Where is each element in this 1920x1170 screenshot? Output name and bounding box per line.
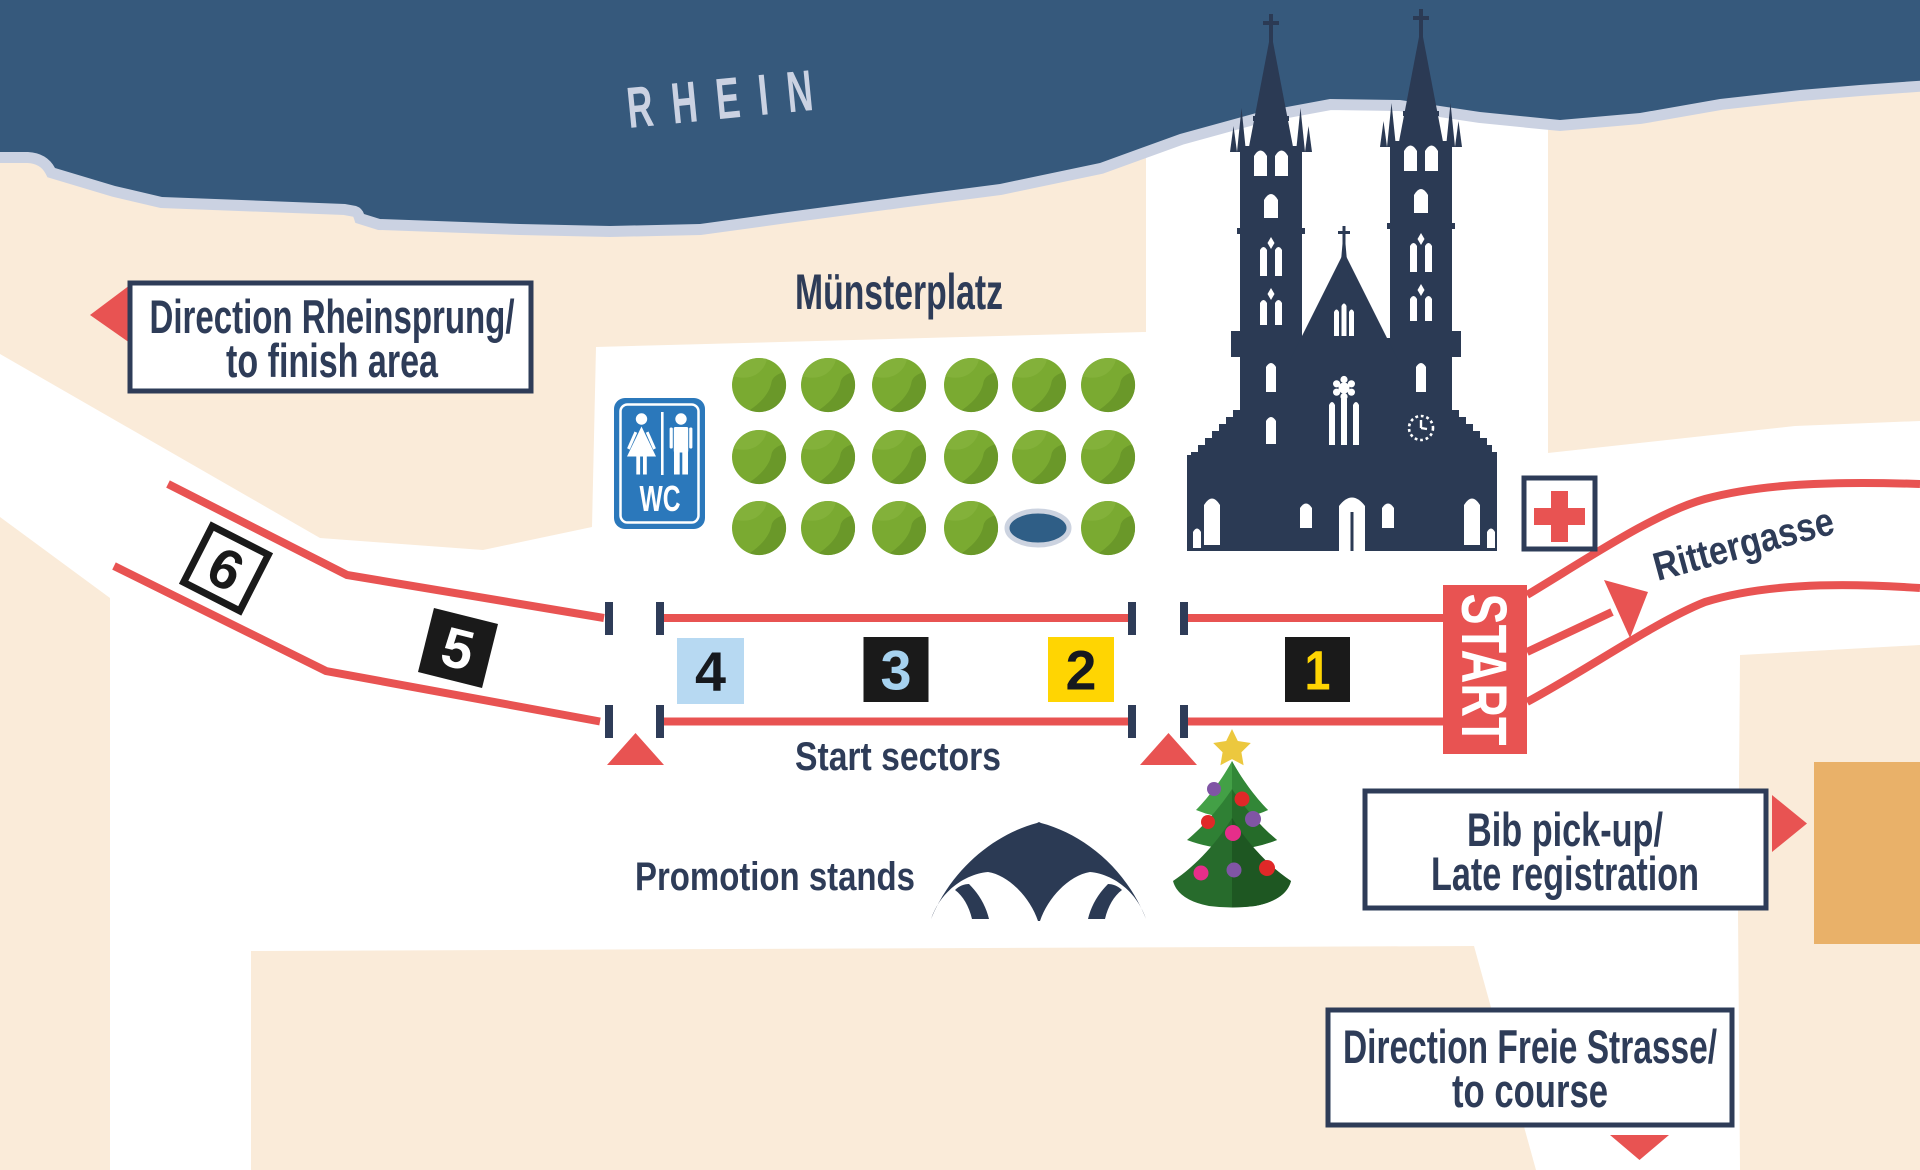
svg-text:START: START [1448, 594, 1520, 746]
svg-text:Start sectors: Start sectors [795, 735, 1001, 779]
svg-text:2: 2 [1066, 639, 1097, 702]
svg-text:WC: WC [640, 478, 681, 519]
svg-text:to course: to course [1452, 1064, 1608, 1117]
svg-text:to finish area: to finish area [226, 334, 439, 387]
svg-text:3: 3 [881, 639, 912, 702]
svg-text:Promotion stands: Promotion stands [635, 855, 915, 899]
svg-text:Late registration: Late registration [1431, 847, 1699, 900]
svg-text:Münsterplatz: Münsterplatz [795, 264, 1003, 320]
svg-text:1: 1 [1305, 639, 1331, 702]
svg-text:4: 4 [695, 640, 726, 703]
